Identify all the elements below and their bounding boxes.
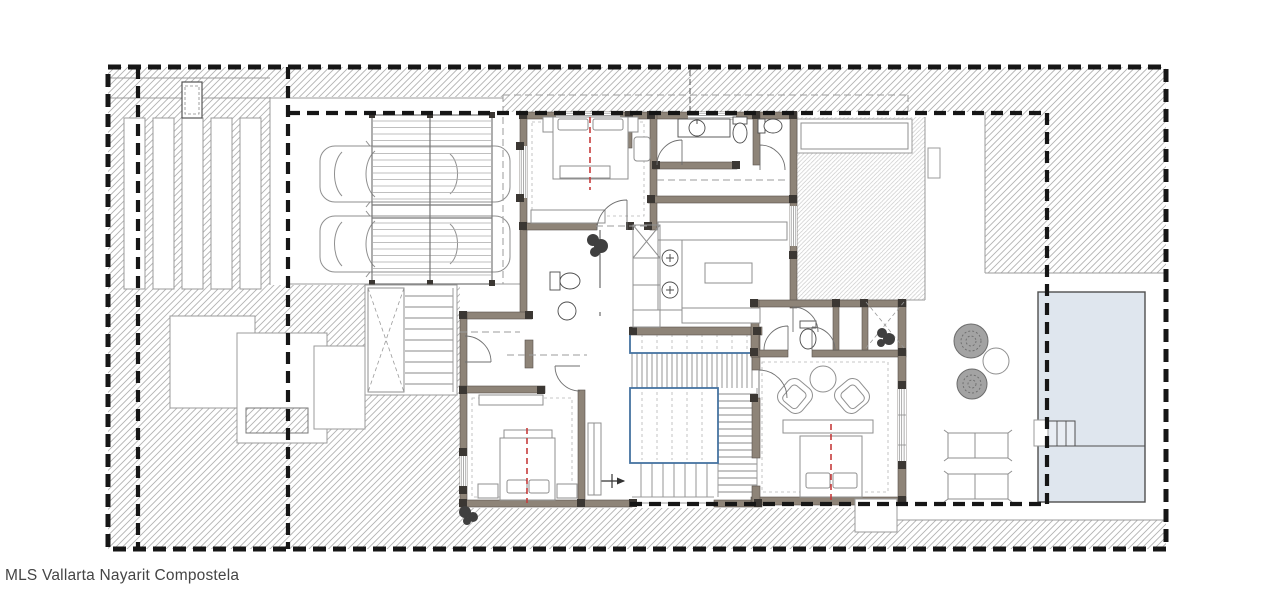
toilet — [733, 123, 747, 143]
watermark-text: MLS Vallarta Nayarit Compostela — [5, 567, 239, 584]
bed-platform — [783, 420, 873, 433]
pool-steps — [1048, 421, 1075, 446]
washbasin — [558, 302, 576, 320]
tree — [954, 324, 988, 358]
sun-lounger — [944, 430, 1012, 461]
floor-plan-page: MLS Vallarta Nayarit Compostela — [0, 0, 1284, 599]
floor-plan-drawing: MLS Vallarta Nayarit Compostela — [0, 0, 1284, 599]
terrace — [793, 117, 940, 300]
garden-table — [983, 348, 1009, 374]
toilet — [560, 273, 580, 289]
toilet — [764, 119, 782, 133]
tree — [957, 369, 987, 399]
pool — [1034, 292, 1145, 502]
utility-box — [182, 82, 202, 118]
shelf — [479, 395, 543, 405]
sun-lounger — [944, 471, 1012, 502]
tv-panel — [634, 137, 650, 161]
round-table — [810, 366, 836, 392]
exterior-stair — [365, 285, 457, 395]
kitchen-island — [705, 263, 752, 283]
counter — [658, 222, 787, 240]
toilet-tank — [550, 272, 560, 290]
garage-slab — [270, 97, 523, 285]
counter — [682, 308, 760, 323]
toilet — [800, 329, 816, 349]
